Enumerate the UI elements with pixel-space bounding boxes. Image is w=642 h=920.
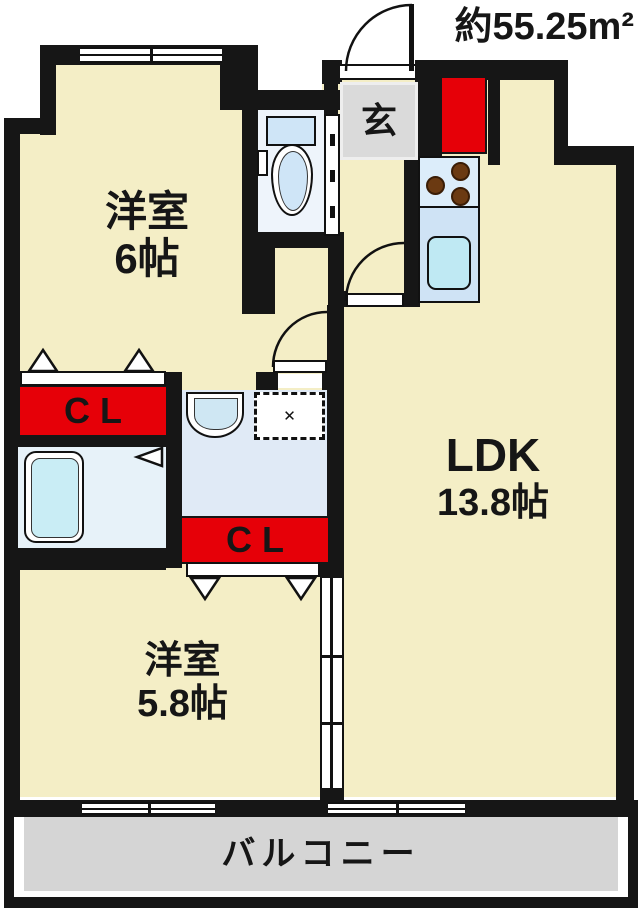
entrance-door-arc: [343, 2, 415, 74]
closet-2: CL: [180, 516, 330, 564]
room6-door-arc: [273, 312, 327, 367]
closet-1-door-triangle-right: [124, 349, 154, 372]
toilet-door: [324, 114, 340, 236]
floor-upper-left: [18, 130, 56, 170]
room58-label: 洋室 5.8帖: [90, 640, 275, 725]
closet-1-door-triangle-left: [28, 349, 58, 372]
balcony-label: バルコニー: [221, 835, 420, 873]
bath-door-arrow-icon: [136, 446, 164, 468]
floor-plan: バルコニー 玄 CL CL: [0, 0, 642, 920]
burner-icon: [451, 162, 470, 181]
kitchen-counter: [418, 206, 480, 303]
kitchen-sink: [427, 236, 471, 290]
room6-door-leaf: [273, 360, 327, 373]
sliding-door: [320, 578, 344, 788]
room6-name: 洋室: [52, 188, 242, 235]
bathtub: [24, 451, 84, 543]
ldk-alcove: [500, 80, 554, 165]
wall-entrance-left-post: [322, 60, 342, 84]
closet-1-doors: [20, 371, 166, 386]
washing-machine-pan: ✕: [254, 392, 325, 440]
ldk-size: 13.8帖: [398, 482, 588, 525]
toilet-handle: [257, 150, 268, 176]
refrigerator-space: [440, 76, 487, 154]
outside-notch-above-toilet: [258, 65, 322, 92]
room58-name: 洋室: [90, 640, 275, 683]
wall-bath-bottom: [18, 548, 166, 570]
wall-alcove-left: [488, 60, 500, 165]
balcony-floor: バルコニー: [24, 817, 618, 891]
burner-icon: [426, 176, 445, 195]
closet-2-doors: [186, 562, 320, 577]
washing-machine-pan-mark: ✕: [283, 407, 296, 425]
ldk-label: LDK 13.8帖: [398, 430, 588, 524]
ldk-name: LDK: [398, 430, 588, 482]
wall-below-toilet: [242, 248, 275, 314]
closet-1-label: CL: [54, 390, 132, 432]
window-ldk-balcony: [328, 802, 465, 815]
closet-2-label: CL: [216, 519, 294, 561]
toilet-tank: [266, 116, 316, 146]
room6-size: 6帖: [52, 235, 242, 282]
closet-2-door-triangle-right: [286, 577, 316, 600]
window-room58-balcony: [82, 802, 215, 815]
room58-size: 5.8帖: [90, 683, 275, 726]
ldk-door-leaf: [346, 293, 404, 307]
room6-label: 洋室 6帖: [52, 188, 242, 282]
closet-1: CL: [18, 385, 168, 437]
area-label: 約55.25m²: [454, 6, 634, 49]
stove: [418, 156, 480, 208]
wall-right: [616, 146, 634, 803]
genkan-label: 玄: [361, 101, 397, 141]
wall-genkan-right: [418, 80, 442, 160]
washroom-doorway: [278, 374, 322, 388]
closet-2-door-triangle-left: [190, 577, 220, 600]
wall-toilet-left-block: [220, 45, 258, 110]
genkan-area: 玄: [340, 82, 418, 160]
burner-icon: [451, 187, 470, 206]
wall-washroom-top-left: [256, 372, 278, 390]
window-room6-top: [80, 47, 222, 63]
